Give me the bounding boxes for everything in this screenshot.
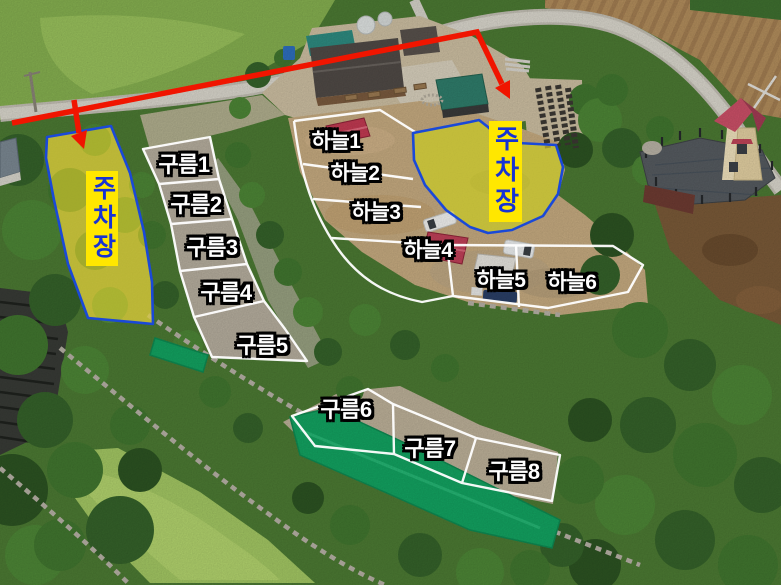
annotation-overlay [0, 0, 781, 585]
site-label-cloud-3: 구름3 [186, 230, 237, 262]
campground-aerial-map: 주차장 주차장 하늘1 하늘2 하늘3 하늘4 하늘5 하늘6 구름1 구름2 … [0, 0, 781, 585]
site-label-sky-6: 하늘6 [548, 266, 597, 296]
site-label-sky-3: 하늘3 [352, 196, 401, 226]
site-label-cloud-8: 구름8 [488, 454, 539, 486]
site-label-cloud-6: 구름6 [320, 392, 371, 424]
site-label-cloud-2: 구름2 [170, 187, 221, 219]
site-label-cloud-4: 구름4 [200, 275, 251, 307]
site-label-sky-2: 하늘2 [331, 157, 380, 187]
site-label-sky-5: 하늘5 [477, 264, 526, 294]
parking-label-right: 주차장 [489, 121, 522, 222]
site-label-cloud-7: 구름7 [404, 431, 455, 463]
site-label-sky-1: 하늘1 [312, 125, 361, 155]
site-label-sky-4: 하늘4 [404, 234, 453, 264]
parking-label-left: 주차장 [86, 171, 118, 266]
parking-area-right-outline [413, 120, 563, 233]
route-arrow [12, 32, 510, 123]
site-label-cloud-5: 구름5 [236, 328, 287, 360]
site-label-cloud-1: 구름1 [158, 147, 209, 179]
